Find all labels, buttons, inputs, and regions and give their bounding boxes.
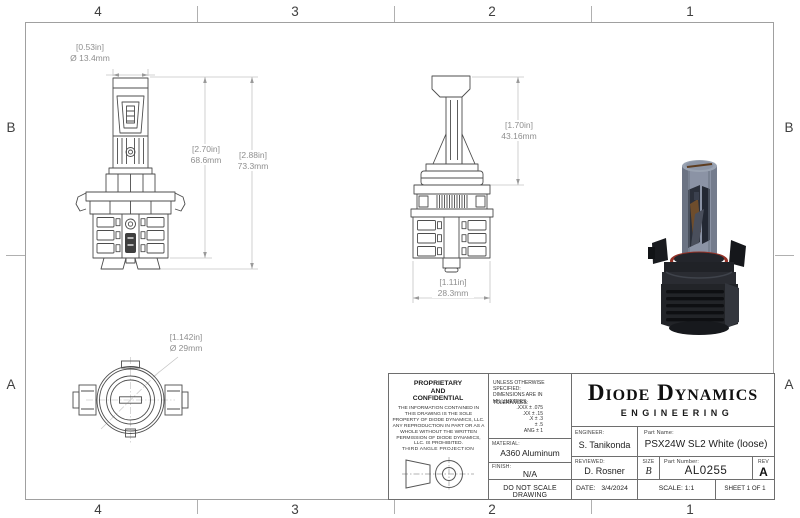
company-subtitle: ENGINEERING (572, 408, 774, 418)
scale-cell: SCALE: 1:1 (638, 480, 715, 499)
part-name-cell: Part Name: PSX24W SL2 White (loose) (638, 427, 774, 456)
proprietary-cell: PROPRIETARY AND CONFIDENTIAL THE INFORMA… (389, 374, 488, 499)
reviewed-value: D. Rosner (572, 466, 637, 476)
part-number-value: AL0255 (660, 465, 752, 477)
projection-label: THIRD ANGLE PROJECTION (391, 447, 485, 452)
proprietary-title: PROPRIETARY AND CONFIDENTIAL (391, 380, 485, 403)
side-view (411, 76, 493, 272)
company-logo: Diode Dynamics ENGINEERING (572, 374, 774, 426)
do-not-scale-text: DO NOT SCALE DRAWING (489, 485, 571, 499)
size-label: SIZE (638, 459, 659, 465)
part-name-value: PSX24W SL2 White (loose) (638, 439, 774, 450)
date-value: 3/4/2024 (601, 485, 627, 492)
rev-value: A (753, 465, 774, 479)
dim-flange-diameter: [1.142in] Ø 29mm (162, 332, 210, 353)
engineer-label: ENGINEER: (575, 430, 604, 436)
sheet-text: SHEET 1 OF 1 (716, 485, 774, 492)
company-name: Diode Dynamics (572, 381, 774, 405)
part-number-cell: Part Number: AL0255 (660, 457, 752, 479)
date-cell: DATE: 3/4/2024 (572, 480, 637, 499)
size-value: B (638, 466, 659, 477)
dim-bulb-diameter: [0.53in] Ø 13.4mm (62, 42, 118, 63)
engineer-value: S. Tanikonda (572, 440, 637, 450)
tolerances-cell: UNLESS OTHERWISE SPECIFIED: DIMENSIONS A… (489, 374, 571, 438)
size-cell: SIZE B (638, 457, 659, 479)
do-not-scale-cell: DO NOT SCALE DRAWING (489, 480, 571, 499)
dim-overall-height: [2.88in] 73.3mm (233, 150, 273, 171)
render-3d-view (648, 160, 746, 335)
reviewed-label: REVIEWED: (575, 459, 605, 465)
dimension-arrows (113, 73, 520, 300)
title-block: PROPRIETARY AND CONFIDENTIAL THE INFORMA… (388, 373, 775, 500)
unless-otherwise-specified: UNLESS OTHERWISE SPECIFIED: (493, 380, 545, 392)
third-angle-projection-icon (402, 455, 474, 493)
dim-base-width: [1.11in] 28.3mm (432, 277, 474, 298)
drawing-sheet: 4 3 2 1 4 3 2 1 B A B A (0, 0, 800, 518)
dim-body-height: [2.70in] 68.6mm (186, 144, 226, 165)
front-view (76, 78, 185, 269)
material-cell: MATERIAL: A360 Aluminum (489, 439, 571, 462)
finish-value: N/A (489, 469, 571, 479)
scale-text: SCALE: 1:1 (638, 485, 715, 492)
material-label: MATERIAL: (492, 441, 520, 447)
sheet-cell: SHEET 1 OF 1 (716, 480, 774, 499)
material-value: A360 Aluminum (489, 448, 571, 458)
reviewed-cell: REVIEWED: D. Rosner (572, 457, 637, 479)
date-label: DATE: (576, 485, 596, 492)
part-name-label: Part Name: (644, 430, 674, 436)
engineer-cell: ENGINEER: S. Tanikonda (572, 427, 637, 456)
dim-blade-height: [1.70in] 43.16mm (498, 120, 540, 141)
proprietary-body: THE INFORMATION CONTAINED IN THIS DRAWIN… (392, 406, 485, 447)
dimension-lines (106, 69, 524, 377)
finish-cell: FINISH: N/A (489, 463, 571, 479)
tolerance-line: ANG ± 1 (505, 429, 543, 435)
rev-cell: REV A (753, 457, 774, 479)
bottom-view (73, 357, 188, 443)
